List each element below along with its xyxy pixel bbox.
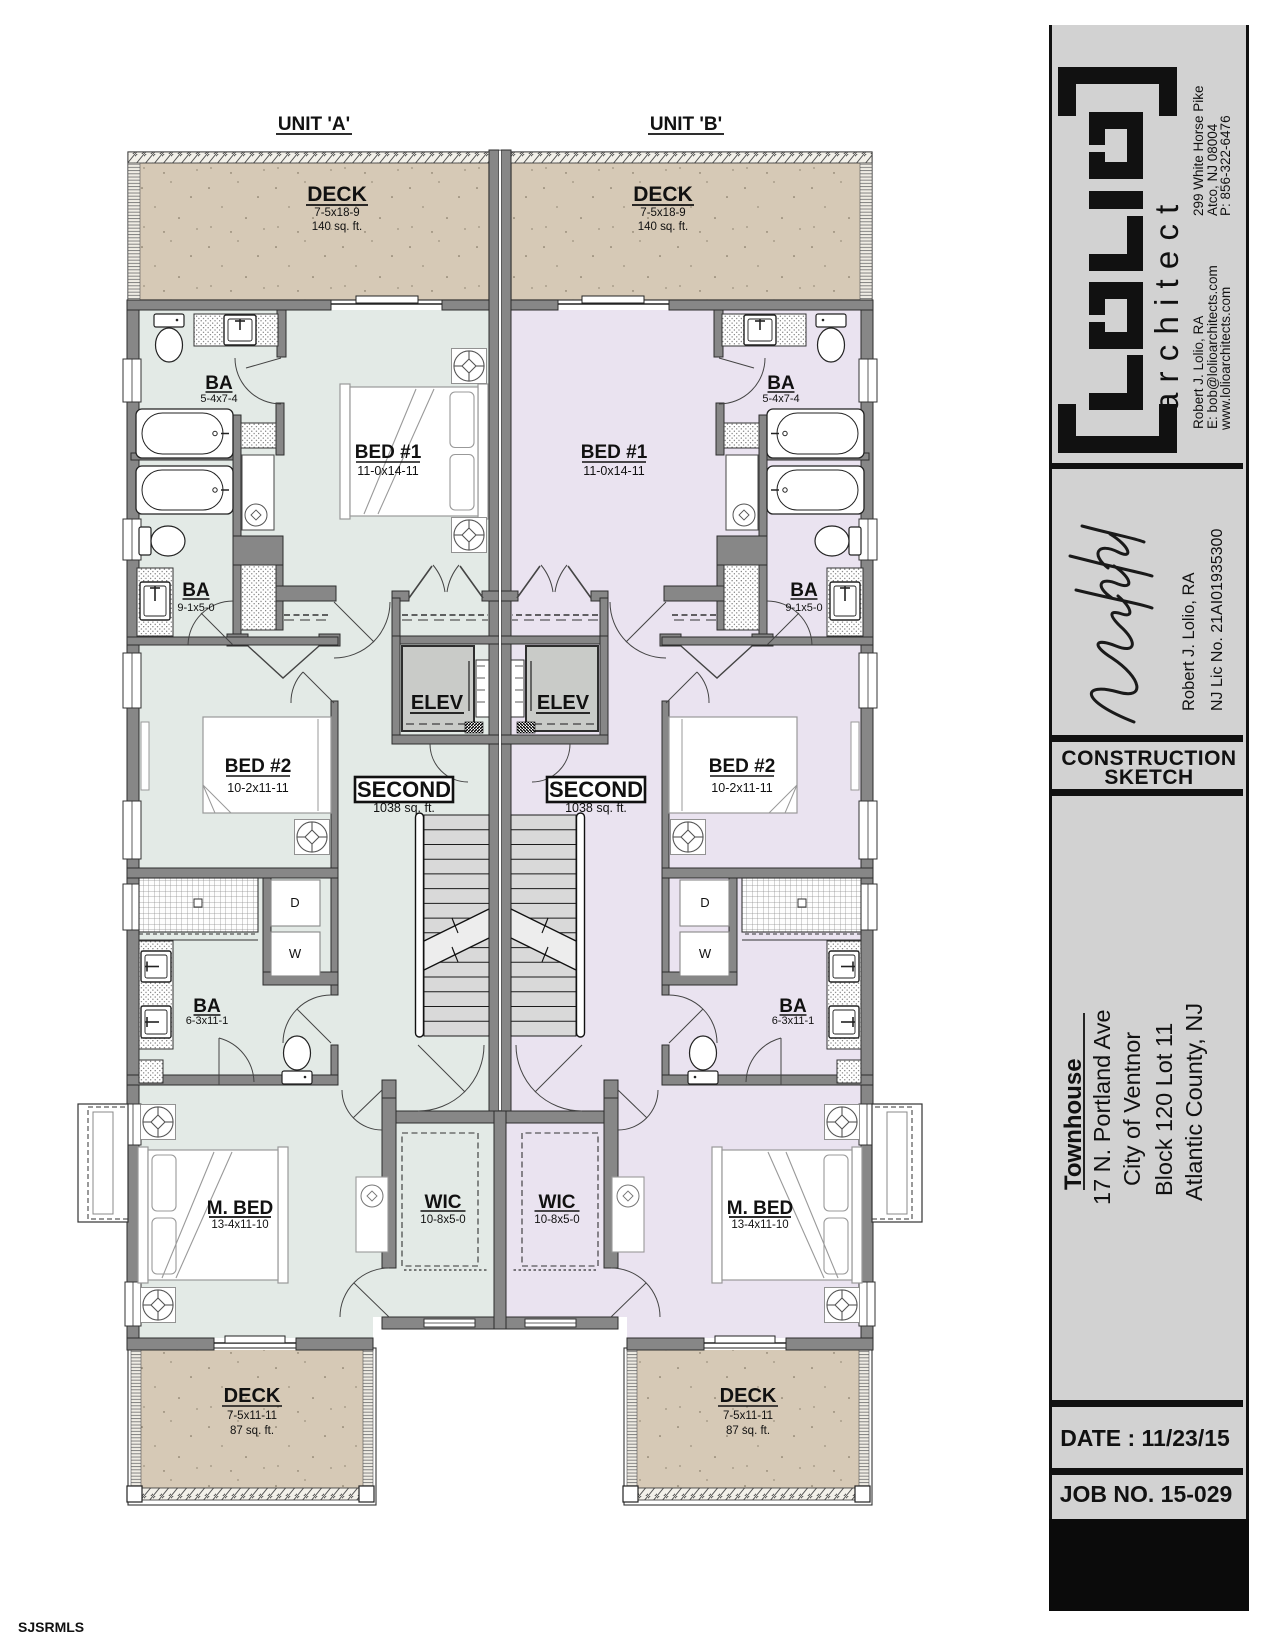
svg-text:6-3x11-1: 6-3x11-1 (186, 1015, 229, 1027)
svg-text:JOB NO. 15-029: JOB NO. 15-029 (1060, 1481, 1233, 1507)
svg-text:W: W (289, 946, 302, 961)
svg-text:7-5x18-9: 7-5x18-9 (314, 207, 359, 219)
svg-text:5-4x7-4: 5-4x7-4 (762, 393, 799, 405)
svg-text:Atlantic County, NJ: Atlantic County, NJ (1181, 1003, 1207, 1201)
svg-text:SKETCH: SKETCH (1104, 766, 1193, 789)
svg-text:NJ Lic No. 21AI01935300: NJ Lic No. 21AI01935300 (1209, 529, 1226, 711)
svg-text:7-5x18-9: 7-5x18-9 (640, 207, 685, 219)
svg-text:Robert J. Lolio, RA: Robert J. Lolio, RA (1191, 316, 1206, 429)
svg-text:UNIT 'B': UNIT 'B' (650, 114, 722, 135)
svg-text:W: W (699, 946, 712, 961)
svg-text:11-0x14-11: 11-0x14-11 (357, 464, 418, 478)
svg-text:ELEV: ELEV (537, 692, 590, 714)
svg-text:D: D (290, 895, 299, 910)
svg-text:BA: BA (790, 580, 818, 601)
svg-text:BA: BA (193, 996, 221, 1017)
svg-text:299 White Horse Pike: 299 White Horse Pike (1191, 85, 1206, 216)
svg-text:13-4x11-10: 13-4x11-10 (731, 1219, 788, 1231)
svg-text:87 sq. ft.: 87 sq. ft. (230, 1425, 274, 1437)
svg-text:10-2x11-11: 10-2x11-11 (227, 781, 288, 795)
svg-text:BA: BA (182, 580, 210, 601)
svg-text:140 sq. ft.: 140 sq. ft. (312, 221, 363, 233)
svg-text:6-3x11-1: 6-3x11-1 (772, 1015, 815, 1027)
svg-text:P: 856-322-6476: P: 856-322-6476 (1218, 115, 1233, 216)
svg-text:7-5x11-11: 7-5x11-11 (723, 1410, 773, 1422)
svg-text:1038 sq. ft.: 1038 sq. ft. (373, 801, 435, 815)
svg-text:10-8x5-0: 10-8x5-0 (534, 1214, 579, 1226)
svg-text:www.lolioarchitects.com: www.lolioarchitects.com (1218, 287, 1233, 431)
svg-text:SECOND: SECOND (549, 777, 643, 802)
svg-text:DECK: DECK (307, 183, 367, 206)
svg-text:13-4x11-10: 13-4x11-10 (211, 1219, 268, 1231)
svg-text:BA: BA (205, 373, 233, 394)
svg-text:9-1x5-0: 9-1x5-0 (785, 602, 822, 614)
svg-text:M. BED: M. BED (207, 1198, 274, 1219)
svg-text:11-0x14-11: 11-0x14-11 (583, 464, 644, 478)
svg-text:DECK: DECK (720, 1385, 777, 1407)
svg-text:D: D (700, 895, 709, 910)
svg-text:DECK: DECK (224, 1385, 281, 1407)
svg-text:BA: BA (767, 373, 795, 394)
svg-text:17 N. Portland Ave: 17 N. Portland Ave (1089, 1009, 1115, 1205)
svg-text:DECK: DECK (633, 183, 693, 206)
svg-text:5-4x7-4: 5-4x7-4 (200, 393, 237, 405)
svg-text:architect: architect (1148, 194, 1185, 411)
svg-text:WIC: WIC (539, 1192, 576, 1213)
svg-text:10-2x11-11: 10-2x11-11 (711, 781, 772, 795)
svg-text:M. BED: M. BED (727, 1198, 794, 1219)
svg-text:ELEV: ELEV (411, 692, 464, 714)
svg-text:BED #1: BED #1 (581, 442, 648, 463)
svg-text:9-1x5-0: 9-1x5-0 (177, 602, 214, 614)
svg-text:Townhouse: Townhouse (1060, 1058, 1087, 1190)
svg-text:Robert J. Lolio, RA: Robert J. Lolio, RA (1180, 573, 1198, 711)
svg-text:City of Ventnor: City of Ventnor (1119, 1032, 1145, 1186)
svg-text:WIC: WIC (425, 1192, 462, 1213)
svg-text:UNIT 'A': UNIT 'A' (278, 114, 350, 135)
svg-text:BED #1: BED #1 (355, 442, 422, 463)
svg-text:10-8x5-0: 10-8x5-0 (420, 1214, 465, 1226)
svg-text:7-5x11-11: 7-5x11-11 (227, 1410, 277, 1422)
svg-text:140 sq. ft.: 140 sq. ft. (638, 221, 689, 233)
svg-text:BA: BA (779, 996, 807, 1017)
svg-text:SJSRMLS: SJSRMLS (18, 1619, 84, 1635)
svg-text:SECOND: SECOND (357, 777, 451, 802)
svg-text:Block 120 Lot 11: Block 120 Lot 11 (1151, 1023, 1177, 1196)
svg-text:87 sq. ft.: 87 sq. ft. (726, 1425, 770, 1437)
svg-text:DATE : 11/23/15: DATE : 11/23/15 (1060, 1425, 1230, 1451)
svg-text:BED #2: BED #2 (709, 756, 776, 777)
svg-text:BED #2: BED #2 (225, 756, 292, 777)
svg-text:1038 sq. ft.: 1038 sq. ft. (565, 801, 627, 815)
